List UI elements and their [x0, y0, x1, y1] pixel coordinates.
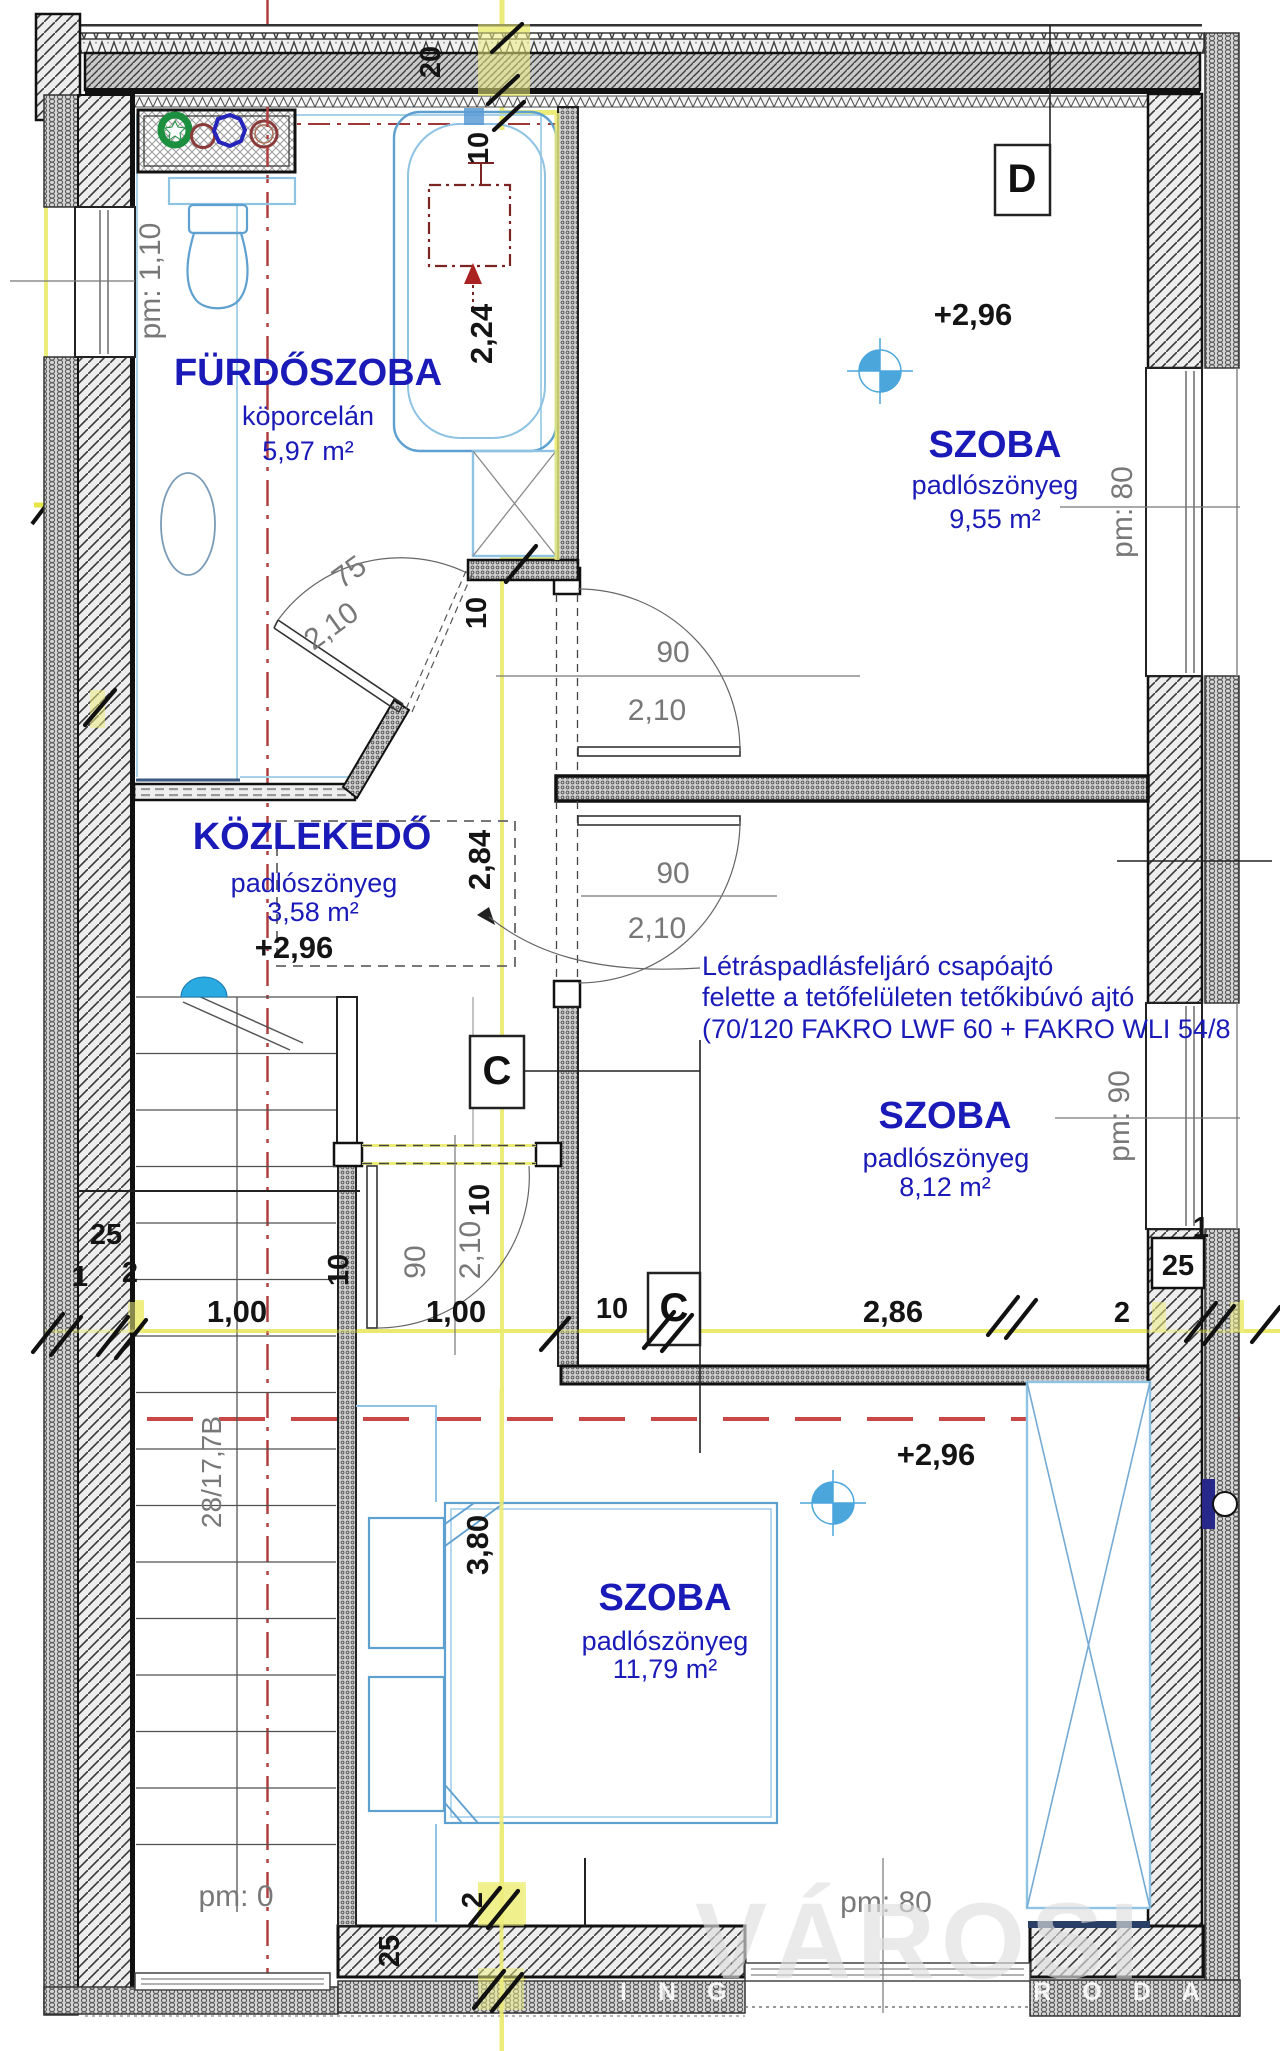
svg-text:1: 1 [1193, 1212, 1209, 1244]
svg-text:C: C [483, 1049, 512, 1093]
svg-text:KÖZLEKEDŐ: KÖZLEKEDŐ [193, 814, 432, 858]
svg-text:(70/120 FAKRO LWF 60 + FAKRO W: (70/120 FAKRO LWF 60 + FAKRO WLI 54/8 [702, 1014, 1230, 1044]
svg-text:9,55 m²: 9,55 m² [949, 504, 1041, 534]
svg-text:10: 10 [461, 597, 493, 629]
svg-text:2,10: 2,10 [628, 694, 686, 727]
svg-text:pm: 1,10: pm: 1,10 [134, 223, 167, 340]
svg-text:2,10: 2,10 [454, 1221, 487, 1279]
svg-text:2,10: 2,10 [628, 912, 686, 945]
svg-text:20: 20 [415, 46, 447, 78]
svg-text:köporcelán: köporcelán [242, 401, 374, 431]
svg-text:+2,96: +2,96 [255, 930, 333, 965]
svg-text:3,58 m²: 3,58 m² [267, 897, 359, 927]
svg-text:1,00: 1,00 [207, 1294, 267, 1329]
svg-text:2,84: 2,84 [462, 829, 497, 890]
svg-text:11,79 m²: 11,79 m² [613, 1654, 718, 1684]
svg-text:25: 25 [1162, 1250, 1194, 1282]
svg-text:pm: 0: pm: 0 [198, 1880, 273, 1913]
svg-text:+2,96: +2,96 [934, 297, 1012, 332]
svg-text:10: 10 [323, 1254, 355, 1286]
svg-text:D: D [1008, 157, 1037, 201]
svg-text:INGATLANIRODA: INGATLANIRODA [620, 1978, 1231, 2006]
svg-text:2: 2 [122, 1257, 138, 1289]
svg-text:felette a tetőfelületen tetőki: felette a tetőfelületen tetőkibúvó ajtó [702, 982, 1134, 1012]
svg-text:28/17,7B: 28/17,7B [196, 1416, 227, 1528]
svg-text:25: 25 [374, 1935, 406, 1967]
svg-text:90: 90 [399, 1245, 432, 1278]
svg-text:padlószönyeg: padlószönyeg [912, 470, 1079, 500]
svg-text:90: 90 [656, 636, 689, 669]
svg-text:+2,96: +2,96 [897, 1437, 975, 1472]
svg-text:3,80: 3,80 [460, 1515, 495, 1575]
svg-text:2: 2 [1114, 1297, 1130, 1329]
svg-text:pm: 80: pm: 80 [1106, 466, 1139, 558]
svg-text:10: 10 [464, 1184, 496, 1216]
svg-text:2,86: 2,86 [863, 1294, 923, 1329]
svg-text:10: 10 [463, 132, 495, 164]
svg-text:8,12 m²: 8,12 m² [899, 1172, 991, 1202]
svg-text:padlószönyeg: padlószönyeg [582, 1626, 749, 1656]
svg-text:25: 25 [90, 1219, 122, 1251]
svg-text:padlószönyeg: padlószönyeg [231, 868, 398, 898]
svg-text:FÜRDŐSZOBA: FÜRDŐSZOBA [174, 350, 442, 394]
svg-text:SZOBA: SZOBA [599, 1577, 732, 1619]
svg-text:2: 2 [457, 1892, 489, 1908]
svg-text:10: 10 [596, 1293, 628, 1325]
svg-text:1: 1 [72, 1261, 88, 1293]
svg-text:SZOBA: SZOBA [929, 424, 1062, 466]
svg-text:padlószönyeg: padlószönyeg [863, 1143, 1030, 1173]
svg-text:pm: 90: pm: 90 [1103, 1070, 1136, 1162]
svg-text:SZOBA: SZOBA [879, 1095, 1012, 1137]
svg-text:Létráspadlásfeljáró csapóajtó: Létráspadlásfeljáró csapóajtó [702, 951, 1053, 981]
svg-text:2,24: 2,24 [464, 303, 499, 364]
svg-text:90: 90 [656, 857, 689, 890]
svg-text:5,97 m²: 5,97 m² [262, 436, 354, 466]
svg-text:1,00: 1,00 [426, 1294, 486, 1329]
